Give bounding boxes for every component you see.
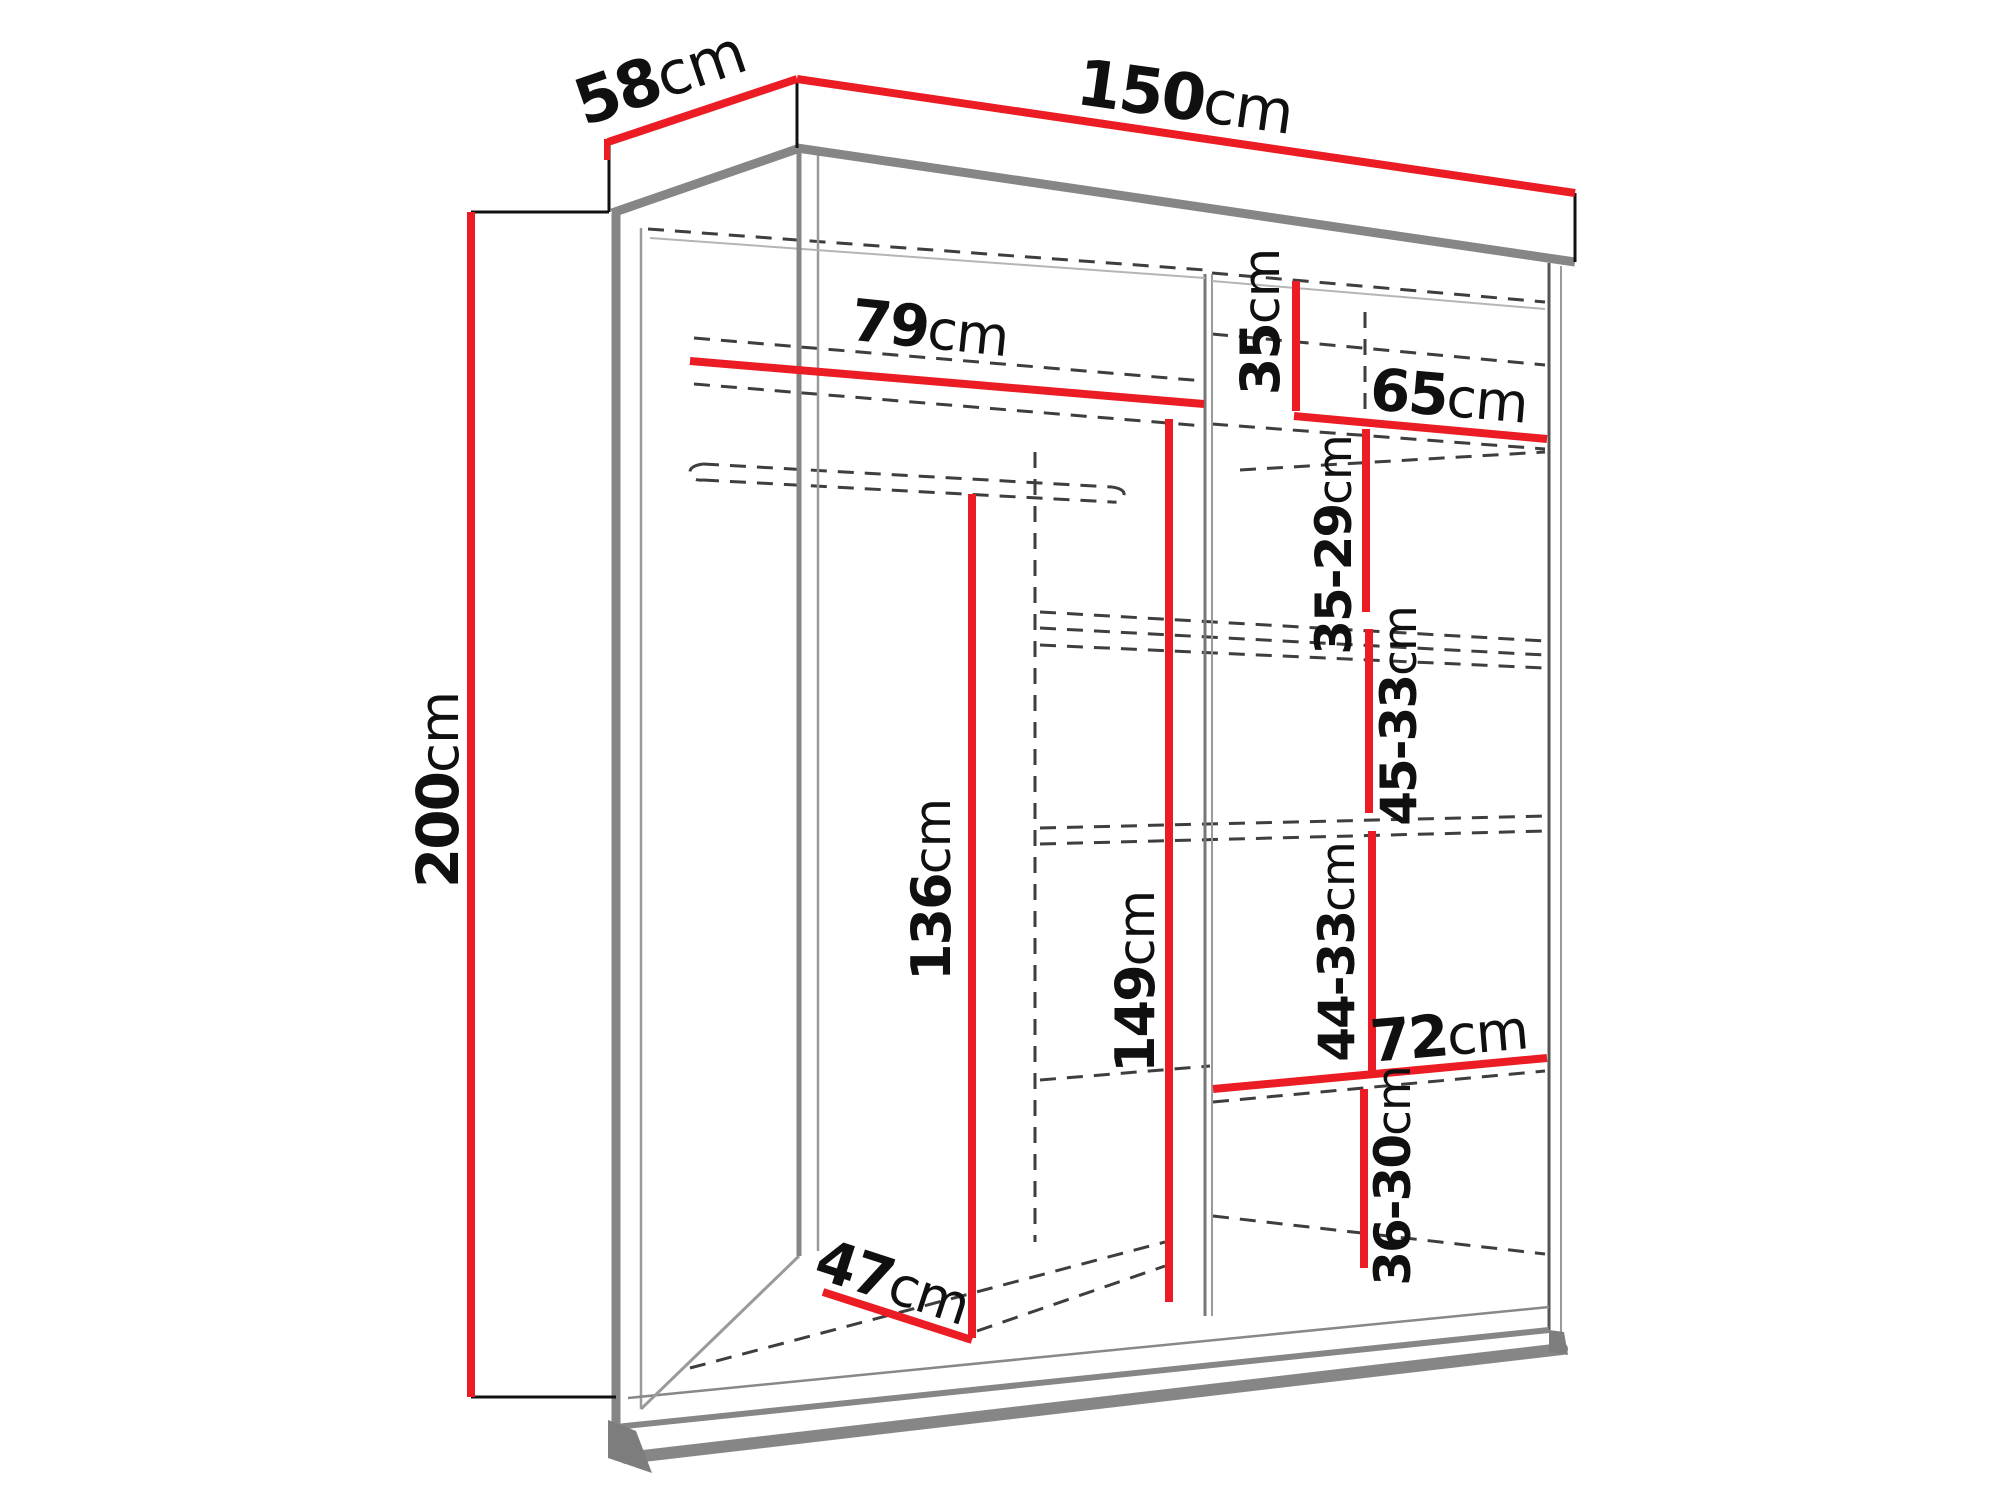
interior-top-left-edge [648,229,1205,270]
right-foot [1549,1330,1568,1355]
bottom-front-edge [616,1330,1549,1427]
shelf2-front-edge [1040,628,1545,655]
wardrobe-dimension-diagram: 58cm 150cm 200cm 79cm 35cm 65cm 35-29cm … [0,0,2000,1500]
left-panel-floor-edge [641,1256,799,1409]
top-shelf-height-label: 35cm [1234,249,1288,396]
left-shelf-front-underside [694,384,1204,426]
bottom-shelf-width-label: 72cm [1368,999,1530,1071]
left-compartment-width-label: 79cm [849,291,1012,365]
hanging-rail-right-cap [1112,487,1124,502]
hanging-rail-bottom [703,480,1112,502]
height-label: 200cm [409,692,467,888]
crown-bottom-edge [797,148,1575,262]
left-section-height-label: 149cm [1109,891,1163,1073]
shelf-spacing-1-label: 35-29cm [1309,435,1359,655]
shelf2-back-edge [1040,612,1545,641]
shelf-spacing-2-label: 45-33cm [1374,606,1424,826]
shelf1-depth-edge [1240,452,1545,470]
dim-line-79 [690,361,1204,404]
shelf3-back-edge [1040,816,1545,828]
wardrobe-drawing [0,0,2000,1500]
hanging-rail-left-cap [690,464,703,480]
left-panel-top-edge [612,149,797,213]
shelf2-underside [1040,645,1545,668]
plinth-top-edge [628,1307,1549,1398]
shelf-spacing-3-label: 44-33cm [1312,842,1362,1062]
bottom-shadow [626,1349,1562,1458]
right-shelf-width-label: 65cm [1368,360,1530,432]
shelf-spacing-4-label: 36-30cm [1368,1066,1418,1286]
floor-left-front-edge [977,1266,1165,1331]
shelf3-front-edge [1040,831,1545,844]
top-panel-underside-left [650,238,1205,278]
hanging-space-height-label: 136cm [905,799,959,981]
